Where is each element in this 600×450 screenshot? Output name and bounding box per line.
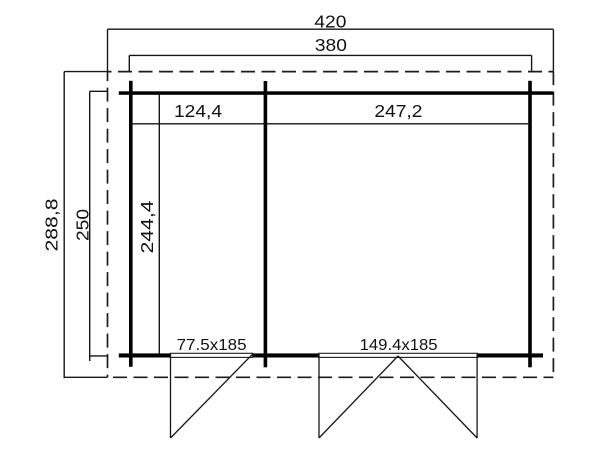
svg-text:288,8: 288,8 [42,199,62,252]
svg-text:149.4x185: 149.4x185 [360,337,438,354]
svg-text:124,4: 124,4 [174,101,222,121]
svg-text:380: 380 [315,35,347,55]
svg-text:77.5x185: 77.5x185 [177,337,247,354]
svg-text:244,4: 244,4 [137,200,157,253]
svg-text:250: 250 [72,209,92,241]
svg-text:247,2: 247,2 [374,101,422,121]
svg-text:420: 420 [314,11,346,31]
